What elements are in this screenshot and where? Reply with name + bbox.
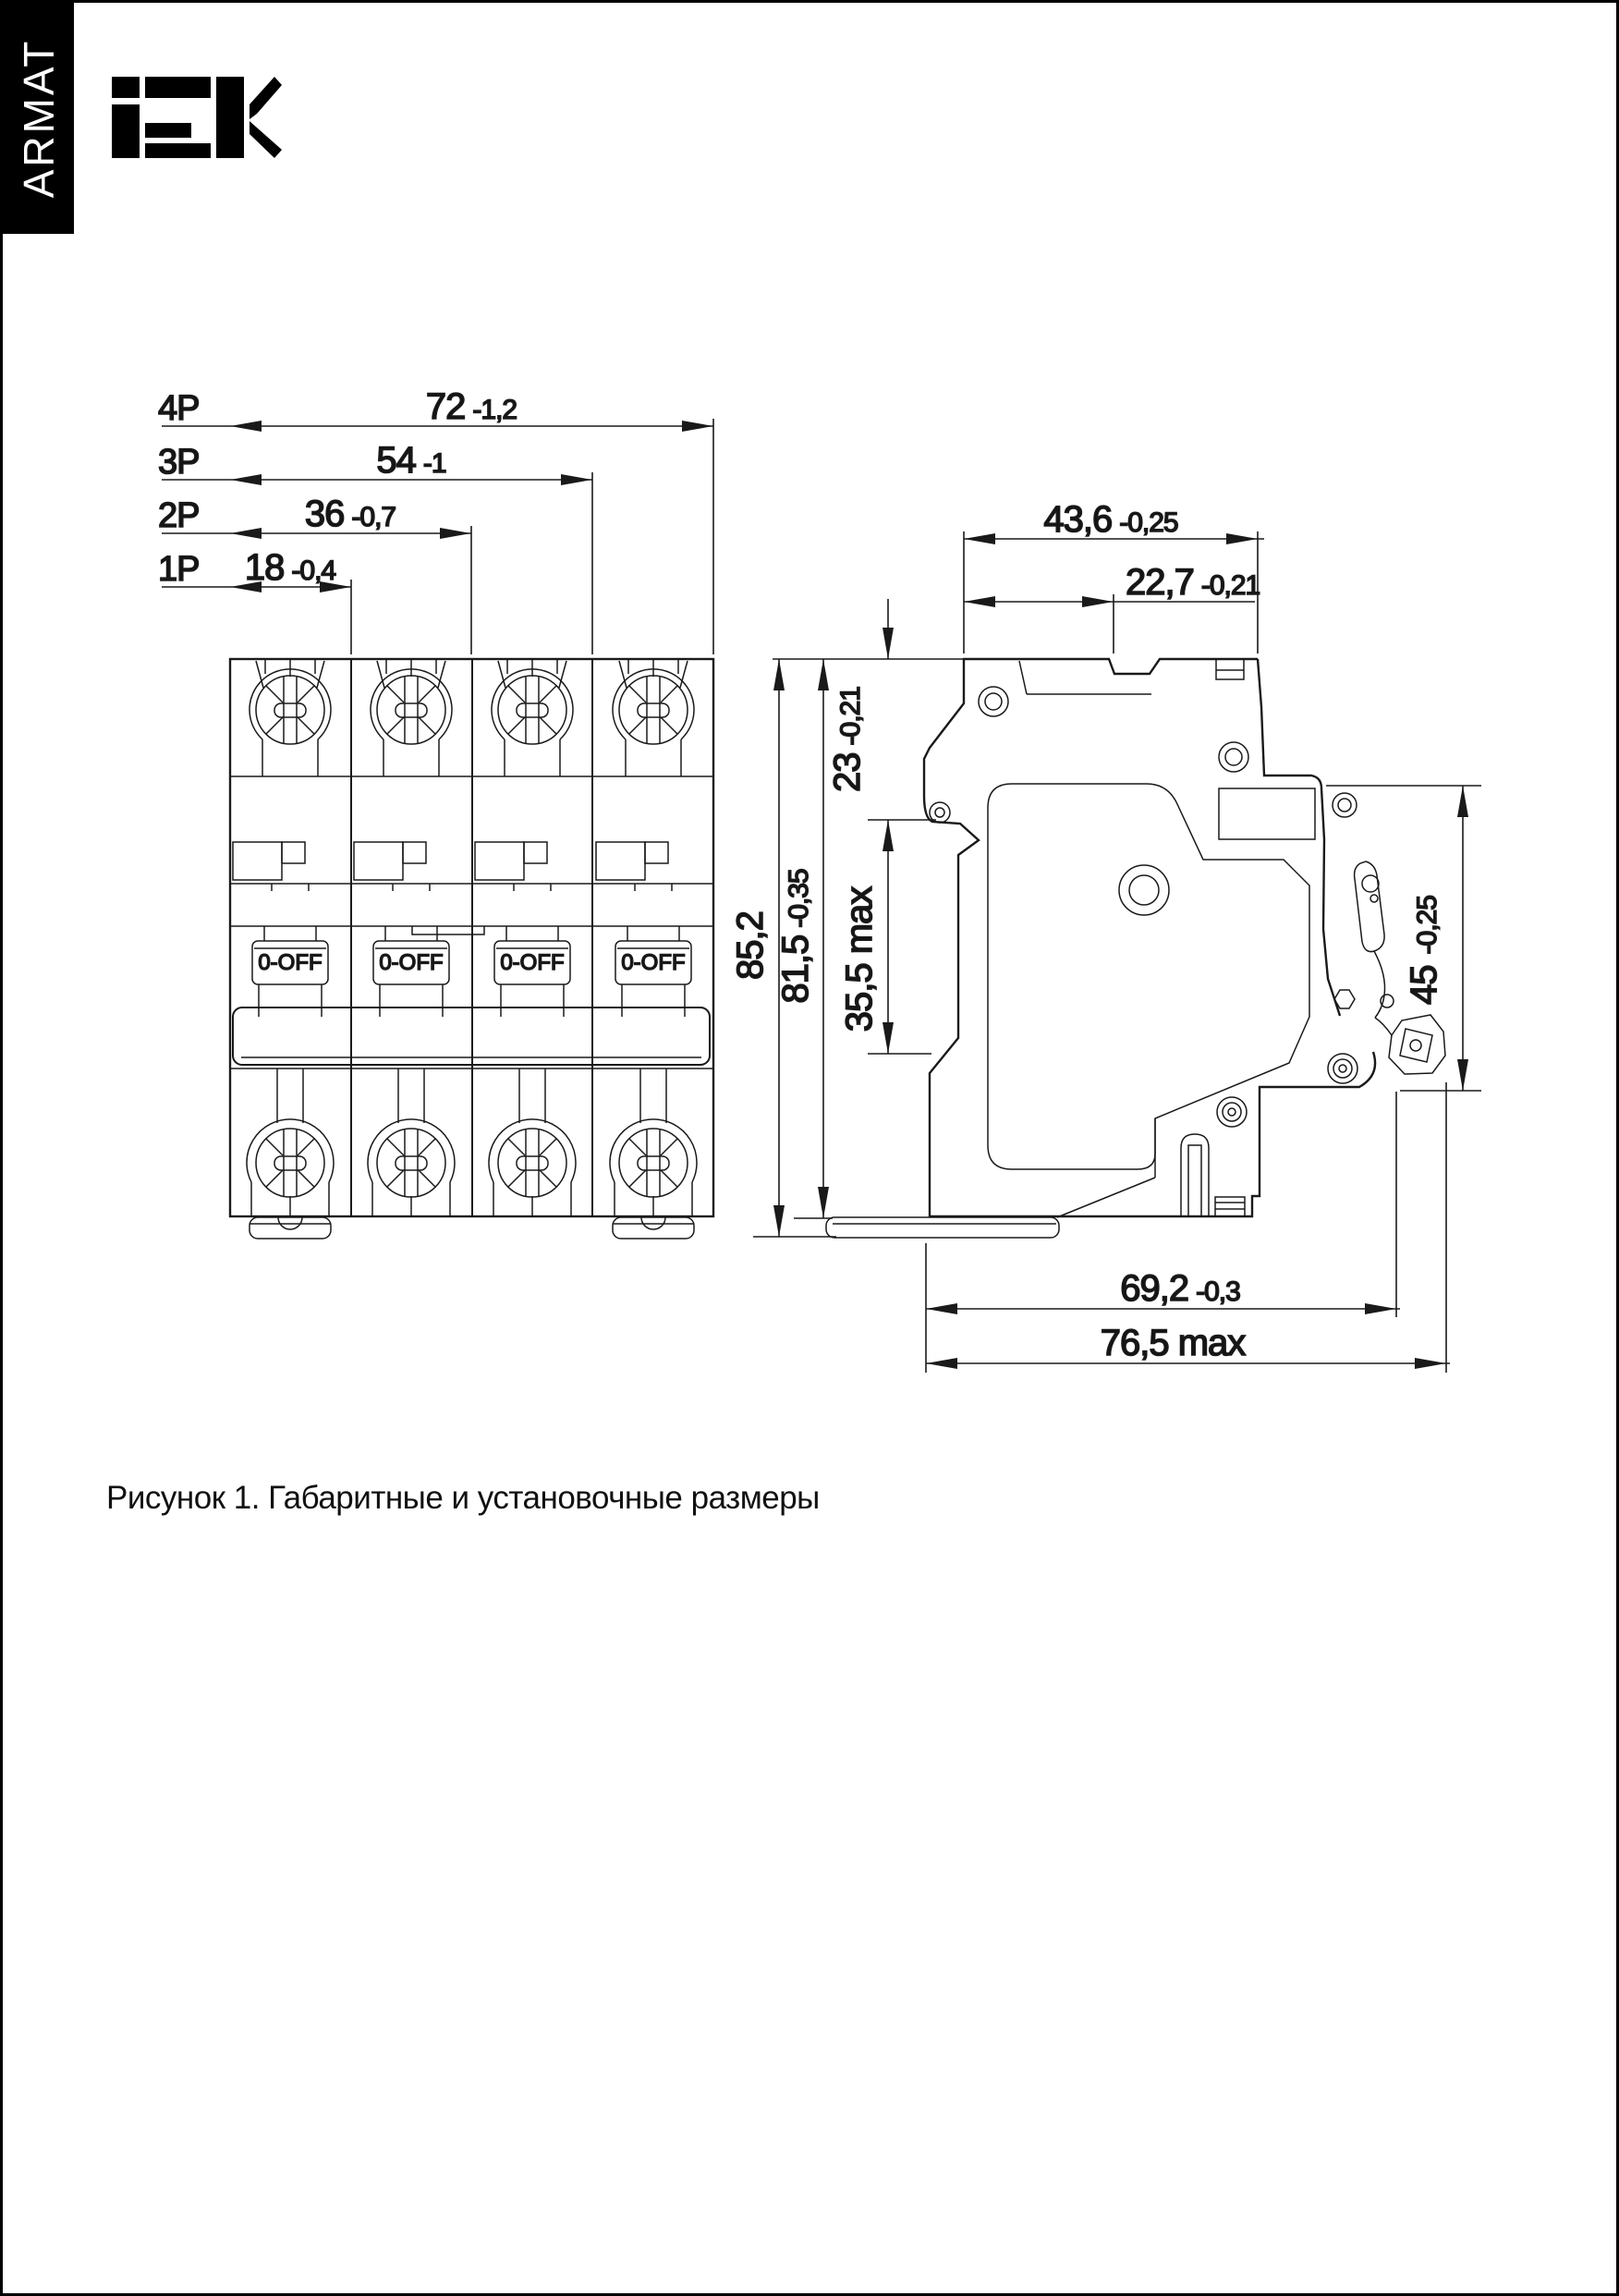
dim-width-3p: 54-1 bbox=[376, 440, 445, 481]
front-view-dimensions: 4P 3P 2P 1P 72-1,2 54-1 36-0,7 18-0,4 bbox=[158, 386, 713, 654]
pole-count-label-1p: 1P bbox=[158, 550, 199, 589]
figure-caption: Рисунок 1. Габаритные и установочные раз… bbox=[106, 1480, 820, 1517]
dimension-drawing: 0-OFF bbox=[3, 3, 1619, 2296]
datasheet-page: ARMAT bbox=[0, 0, 1619, 2296]
dim-height-body: 81,5-0,35 bbox=[775, 869, 816, 1004]
dim-top-to-rail: 23-0,21 bbox=[827, 687, 868, 792]
pole-count-label-2p: 2P bbox=[158, 496, 199, 535]
dim-height-total: 85,2 bbox=[730, 911, 771, 980]
front-view-drawing bbox=[230, 659, 713, 1239]
dim-rail-zone: 35,5 max bbox=[839, 886, 880, 1032]
dim-width-4p: 72-1,2 bbox=[426, 386, 517, 427]
dim-depth-body: 69,2-0,3 bbox=[1120, 1268, 1240, 1309]
pole-count-label-3p: 3P bbox=[158, 443, 199, 482]
din-clip-tab bbox=[826, 1118, 1155, 1238]
dim-depth-recess: 22,7-0,21 bbox=[1126, 562, 1260, 603]
dim-width-2p: 36-0,7 bbox=[305, 494, 396, 534]
dim-depth-max: 76,5 max bbox=[1101, 1323, 1247, 1363]
dim-depth-top: 43,6-0,25 bbox=[1043, 499, 1178, 540]
side-view-drawing bbox=[826, 659, 1445, 1238]
pole-count-label-4p: 4P bbox=[158, 389, 199, 428]
dim-width-1p: 18-0,4 bbox=[245, 547, 336, 588]
side-view-dimensions: 43,6-0,25 22,7-0,21 23-0,21 35,5 max 85,… bbox=[730, 499, 1481, 1373]
dim-front-height: 45-0,25 bbox=[1404, 896, 1444, 1005]
